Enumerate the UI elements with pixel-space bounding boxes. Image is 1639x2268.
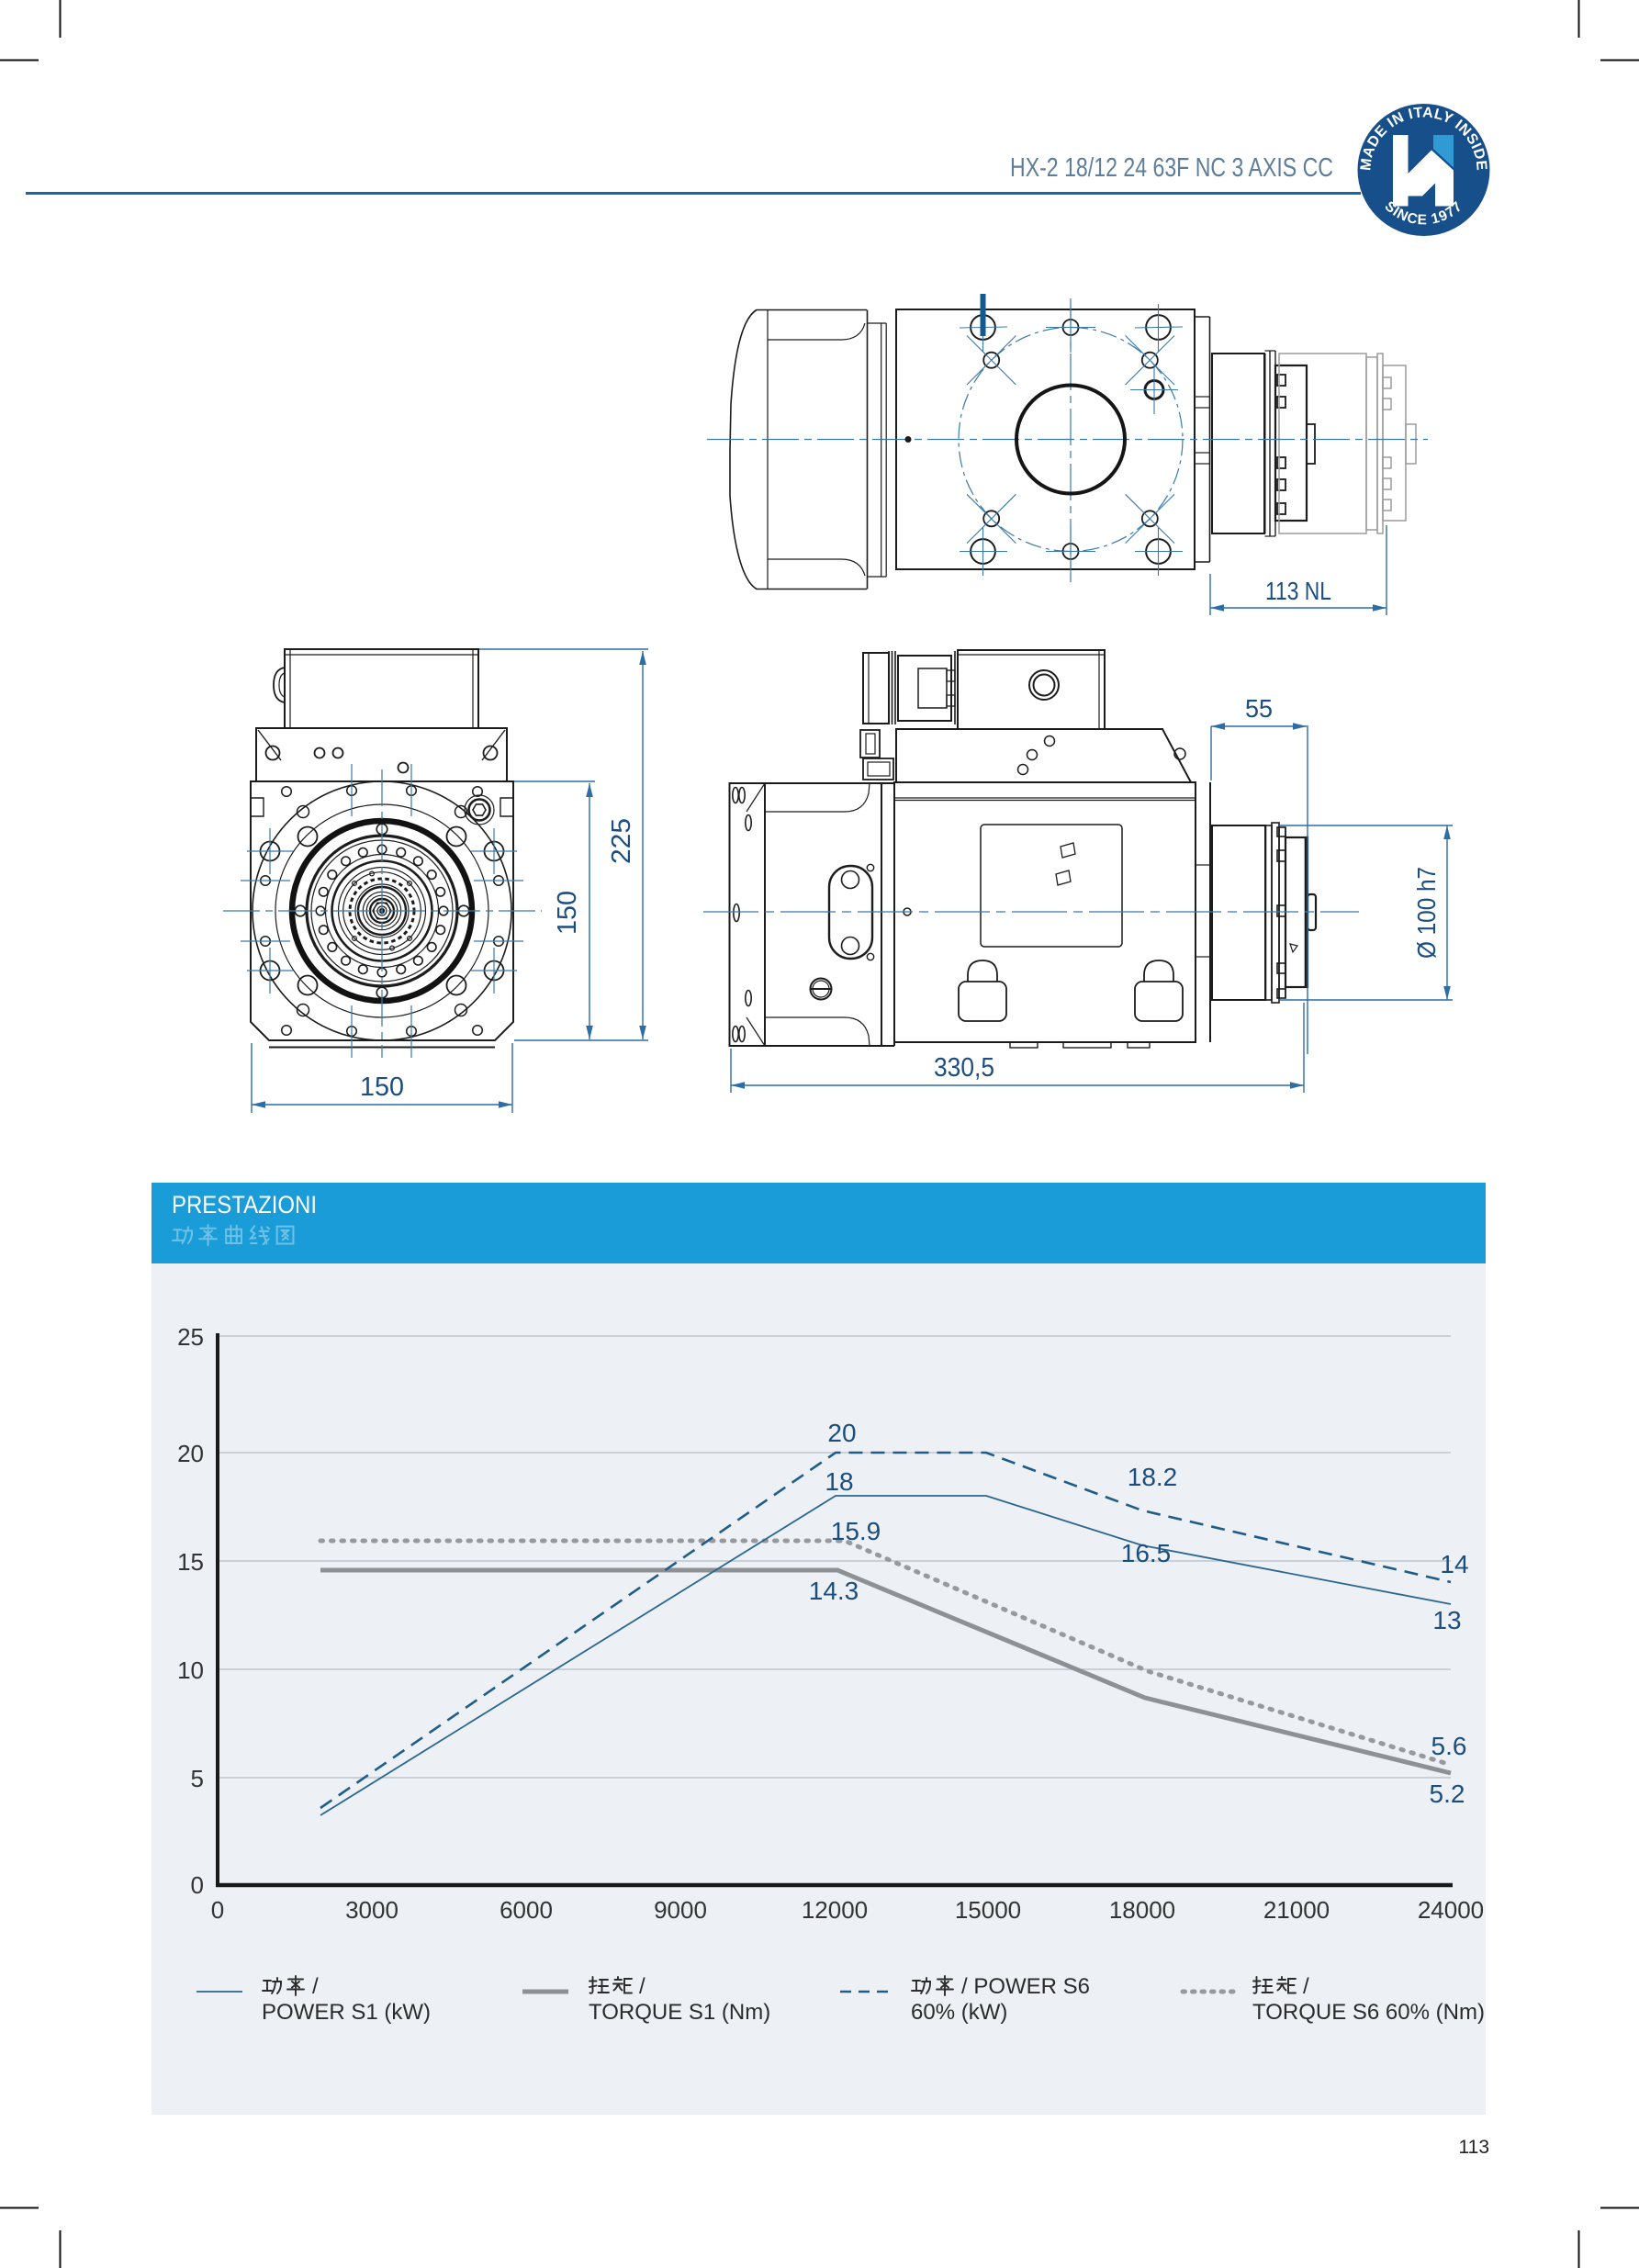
svg-text:PRESTAZIONI: PRESTAZIONI <box>172 1191 317 1218</box>
svg-text:Ø 100 h7: Ø 100 h7 <box>1412 867 1441 959</box>
svg-text:60% (kW): 60% (kW) <box>911 2000 1007 2025</box>
svg-text:TORQUE S1 (Nm): TORQUE S1 (Nm) <box>589 2000 770 2025</box>
svg-text:113: 113 <box>1459 2137 1489 2158</box>
svg-text:21000: 21000 <box>1263 1896 1330 1924</box>
svg-text:9000: 9000 <box>654 1896 707 1924</box>
svg-text:14.3: 14.3 <box>809 1577 859 1605</box>
svg-text:225: 225 <box>607 818 636 864</box>
svg-text:330,5: 330,5 <box>934 1053 994 1083</box>
svg-text:14: 14 <box>1440 1550 1468 1578</box>
svg-text:20: 20 <box>827 1419 856 1447</box>
svg-text:/ POWER S6: / POWER S6 <box>961 1974 1090 1999</box>
svg-text:113 NL: 113 NL <box>1265 577 1331 605</box>
svg-text:TORQUE S6 60% (Nm): TORQUE S6 60% (Nm) <box>1252 2000 1485 2025</box>
svg-text:16.5: 16.5 <box>1121 1539 1172 1567</box>
svg-text:10: 10 <box>177 1656 204 1684</box>
svg-text:18.2: 18.2 <box>1128 1463 1178 1491</box>
svg-text:12000: 12000 <box>802 1896 868 1924</box>
svg-text:25: 25 <box>177 1323 204 1351</box>
svg-text:/: / <box>639 1974 645 1999</box>
svg-text:5.2: 5.2 <box>1430 1780 1465 1808</box>
svg-text:55: 55 <box>1245 694 1273 723</box>
svg-text:24000: 24000 <box>1418 1896 1484 1924</box>
svg-text:5: 5 <box>191 1765 204 1792</box>
svg-text:POWER S1 (kW): POWER S1 (kW) <box>262 2000 431 2025</box>
svg-text:15000: 15000 <box>955 1896 1021 1924</box>
svg-text:/: / <box>312 1974 319 1999</box>
svg-text:5.6: 5.6 <box>1431 1732 1467 1760</box>
svg-text:13: 13 <box>1432 1606 1461 1634</box>
svg-text:15: 15 <box>177 1548 204 1576</box>
svg-text:18: 18 <box>825 1467 853 1496</box>
svg-text:20: 20 <box>177 1440 204 1467</box>
svg-text:HX-2 18/12 24 63F NC 3 AXIS CC: HX-2 18/12 24 63F NC 3 AXIS CC <box>1010 153 1333 183</box>
svg-text:150: 150 <box>553 891 582 935</box>
svg-text:3000: 3000 <box>345 1896 399 1924</box>
svg-text:/: / <box>1303 1974 1309 1999</box>
svg-text:6000: 6000 <box>500 1896 553 1924</box>
svg-text:150: 150 <box>360 1072 404 1102</box>
svg-text:15.9: 15.9 <box>831 1517 881 1545</box>
svg-text:0: 0 <box>191 1871 204 1899</box>
svg-text:18000: 18000 <box>1109 1896 1175 1924</box>
svg-text:0: 0 <box>211 1896 224 1924</box>
